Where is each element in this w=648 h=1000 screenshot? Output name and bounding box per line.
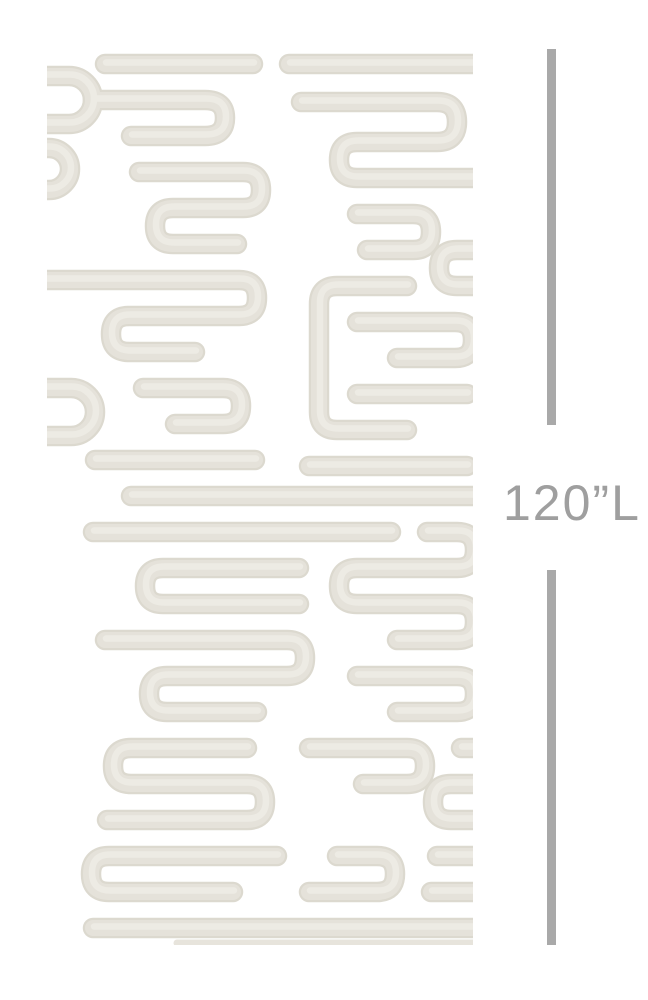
product-dimension-illustration: 120”L bbox=[0, 0, 648, 1000]
measurement-line-bottom-segment bbox=[547, 570, 556, 945]
maze-pattern-graphic bbox=[47, 50, 473, 945]
length-label: 120”L bbox=[503, 477, 633, 529]
wallpaper-panel-image bbox=[47, 50, 473, 945]
measurement-line-top-segment bbox=[547, 49, 556, 425]
